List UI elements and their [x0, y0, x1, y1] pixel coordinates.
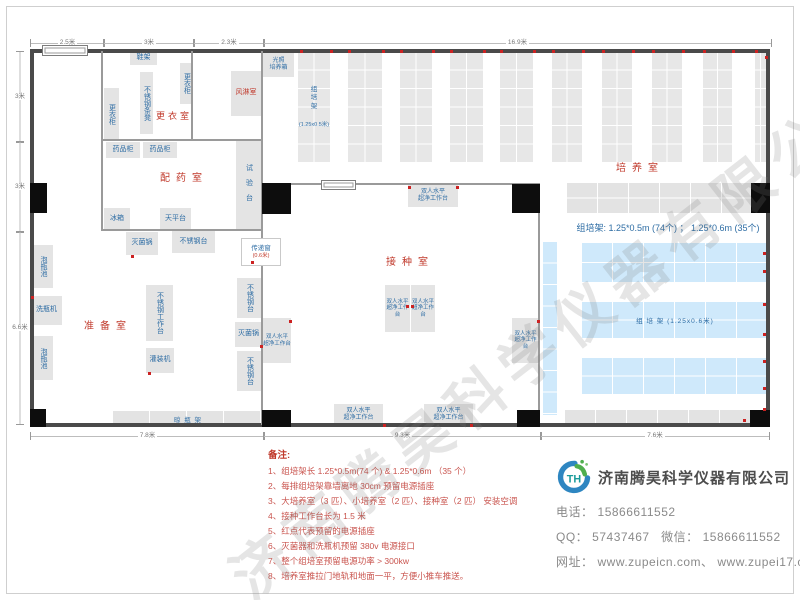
company-tel-line: 电话：15866611552 — [556, 503, 794, 520]
note-item: 1、组培架长 1.25*0.5m(74 个) & 1.25*0.6m （35 个… — [268, 464, 553, 479]
dimension-left: 3米 — [16, 141, 24, 233]
power-outlet-dot — [552, 50, 555, 53]
note-item: 4、接种工作台长为 1.5 米 — [268, 509, 553, 524]
company-logo-icon: TH — [556, 459, 592, 495]
dimension-bottom: 7.6米 — [540, 432, 770, 440]
power-outlet-dot — [652, 50, 655, 53]
rack-column-label: 组 培 架 — [300, 86, 328, 111]
wall-inoculation-right — [538, 185, 540, 425]
room-label-inoculation: 接种室 — [368, 258, 452, 268]
pass-window-label: 传递窗 — [251, 245, 271, 252]
culture-rack-column — [652, 52, 682, 163]
svg-text:TH: TH — [567, 473, 582, 485]
wall-right — [766, 49, 770, 427]
power-outlet-dot — [763, 408, 766, 411]
dimension-label: 16.9米 — [506, 40, 529, 47]
pass-through-window: 传递窗(0.6米) — [241, 238, 281, 266]
room-label-dispensing: 配药室 — [142, 174, 226, 184]
note-item: 6、灭菌器和洗瓶机预留 380v 电源接口 — [268, 539, 553, 554]
room-label-changing: 更衣室 — [144, 112, 204, 121]
bottle-drying-rack-label: 晾 瓶 架 — [174, 414, 202, 424]
clean-bench-center-left: 双人水平 超净工作台 — [385, 285, 410, 332]
pass-window-size: (0.6米) — [253, 253, 270, 259]
dimension-label: 3米 — [13, 94, 27, 101]
note-item: 8、培养室推拉门地轨和地面一平，方便小推车推送。 — [268, 569, 553, 584]
sterilizer-1: 灭菌锅 — [126, 232, 158, 255]
locker-left: 更衣柜 — [104, 88, 119, 141]
air-shower: 风淋室 — [231, 71, 261, 116]
power-outlet-dot — [382, 50, 385, 53]
soak-pool-2: 泡瓶池 — [33, 336, 53, 380]
culture-rack-column — [500, 52, 533, 163]
dimension-bottom: 7.8米 — [30, 432, 265, 440]
dimension-left: 3米 — [16, 51, 24, 143]
steel-table-1: 不锈钢台 — [172, 231, 215, 253]
sterilizer-2: 灭菌锅 — [235, 322, 262, 347]
power-outlet-dot — [732, 50, 735, 53]
power-outlet-dot — [763, 360, 766, 363]
note-item: 3、大培养室（3 匹）、小培养室（2 匹）、接种室（2 匹） 安装空调 — [268, 494, 553, 509]
power-outlet-dot — [300, 50, 303, 53]
door — [751, 183, 770, 213]
notes-title: 备注: — [268, 447, 553, 461]
door-opening — [321, 180, 356, 190]
steel-table-2: 不锈钢台 — [237, 278, 262, 318]
dimension-bottom: 9.3米 — [263, 432, 542, 440]
door — [30, 183, 47, 213]
culture-rack-column — [400, 52, 432, 163]
culture-rack-column — [450, 52, 483, 163]
web-value: www.zupeicn.com、 www.zupei17.com — [598, 555, 800, 569]
company-name: 济南腾昊科学仪器有限公司 — [598, 467, 790, 488]
dimension-label: 3米 — [13, 184, 27, 191]
clean-bench-west: 双人水平 超净工作台 — [263, 318, 291, 363]
power-outlet-dot — [251, 261, 254, 264]
power-outlet-dot — [682, 50, 685, 53]
dimension-top: 16.9米 — [263, 39, 772, 47]
dimension-top: 2.3米 — [193, 39, 265, 47]
power-outlet-dot — [289, 320, 292, 323]
power-outlet-dot — [450, 50, 453, 53]
door — [262, 410, 291, 427]
power-outlet-dot — [348, 50, 351, 53]
clean-bench-south-2: 双人水平 超净工作台 — [424, 404, 473, 425]
power-outlet-dot — [31, 296, 34, 299]
power-outlet-dot — [537, 320, 540, 323]
power-outlet-dot — [763, 252, 766, 255]
blue-rack-row-2-label: 组 培 架 (1.25x0.6米) — [636, 315, 714, 325]
door — [517, 410, 540, 427]
clean-bench-south-1: 双人水平 超净工作台 — [334, 404, 383, 425]
blue-rack-row-2: 组 培 架 (1.25x0.6米) — [582, 302, 768, 338]
dimension-label: 3米 — [142, 40, 156, 47]
wechat-label: 微信： — [661, 530, 699, 544]
dimension-label: 7.6米 — [645, 433, 665, 440]
blue-rack-row-3 — [582, 358, 768, 394]
medicine-cabinet-1: 药品柜 — [106, 142, 140, 158]
dimension-label: 7.8米 — [138, 433, 158, 440]
note-item: 2、每排组培架靠墙离地 30cm 预留电源插座 — [268, 479, 553, 494]
tel-value: 15866611552 — [598, 505, 676, 519]
power-outlet-dot — [743, 419, 746, 422]
power-outlet-dot — [765, 56, 768, 59]
blue-rack-vertical — [543, 242, 557, 415]
blue-rack-row-1 — [582, 243, 768, 282]
power-outlet-dot — [456, 186, 459, 189]
balance-table: 天平台 — [160, 208, 191, 230]
power-outlet-dot — [400, 50, 403, 53]
dimension-label: 2.3米 — [219, 40, 239, 47]
notes-block: 备注: 1、组培架长 1.25*0.5m(74 个) & 1.25*0.6m （… — [268, 447, 553, 584]
culture-rack-column — [703, 52, 732, 163]
company-web-line: 网址：www.zupeicn.com、 www.zupei17.com — [556, 553, 794, 570]
wall-bottom — [30, 423, 770, 427]
power-outlet-dot — [260, 345, 263, 348]
notes-list: 1、组培架长 1.25*0.5m(74 个) & 1.25*0.6m （35 个… — [268, 464, 553, 584]
door — [750, 410, 770, 427]
rack-column-sub-label: (1.25x0.5米) — [293, 122, 335, 129]
power-outlet-dot — [755, 50, 758, 53]
door-opening — [42, 45, 88, 56]
culture-rack-column — [602, 52, 632, 163]
tel-label: 电话： — [556, 505, 594, 519]
power-outlet-dot — [763, 333, 766, 336]
power-outlet-dot — [763, 270, 766, 273]
power-outlet-dot — [406, 305, 409, 308]
wall-left — [30, 49, 34, 427]
power-outlet-dot — [632, 50, 635, 53]
dimension-top: 3米 — [103, 39, 195, 47]
clean-bench-top: 双人水平 超净工作台 — [408, 185, 458, 207]
power-outlet-dot — [330, 50, 333, 53]
power-outlet-dot — [533, 50, 536, 53]
soak-pool-1: 泡瓶池 — [33, 245, 53, 288]
power-outlet-dot — [383, 424, 386, 427]
medicine-cabinet-2: 药品柜 — [143, 142, 177, 158]
room-label-culture: 培养室 — [598, 164, 682, 174]
power-outlet-dot — [602, 50, 605, 53]
light-incubator: 光照 培养箱 — [263, 52, 294, 77]
door — [30, 409, 46, 427]
bottle-washer: 洗瓶机 — [31, 296, 62, 325]
dimension-label: 9.3米 — [393, 433, 413, 440]
door — [262, 183, 291, 214]
power-outlet-dot — [411, 305, 414, 308]
company-block: TH 济南腾昊科学仪器有限公司 电话：15866611552 QQ：574374… — [556, 459, 794, 570]
web-label: 网址： — [556, 555, 594, 569]
power-outlet-dot — [763, 303, 766, 306]
fridge: 冰箱 — [104, 208, 130, 230]
wall-inner-changing-left — [101, 51, 103, 231]
power-outlet-dot — [500, 50, 503, 53]
wechat-value: 15866611552 — [703, 530, 781, 544]
qq-value: 57437467 — [592, 530, 649, 544]
shoe-rack: 鞋架 — [130, 52, 157, 65]
power-outlet-dot — [131, 255, 134, 258]
culture-rack-column — [552, 52, 582, 163]
company-header: TH 济南腾昊科学仪器有限公司 — [556, 459, 794, 495]
filling-machine: 灌装机 — [146, 348, 174, 373]
room-label-preparation: 准备室 — [66, 322, 150, 332]
floor-plan-page: 鞋架更衣柜不锈钢条凳更衣柜风淋室光照 培养箱药品柜药品柜试验台冰箱天平台灭菌锅不… — [0, 0, 800, 600]
steel-worktable: 不锈钢工作台 — [146, 285, 173, 341]
power-outlet-dot — [148, 372, 151, 375]
power-outlet-dot — [763, 387, 766, 390]
dimension-left: 6.6米 — [16, 231, 24, 425]
rack-spec-note: 组培架: 1.25*0.5m (74个) ； 1.25*0.6m (35个) — [566, 223, 770, 235]
wall-inner-airshower — [191, 51, 193, 141]
company-qq-line: QQ：57437467 微信：15866611552 — [556, 528, 794, 545]
power-outlet-dot — [483, 50, 486, 53]
wall-inner-changing-bottom — [101, 139, 263, 141]
steel-table-3: 不锈钢台 — [237, 351, 262, 391]
power-outlet-dot — [703, 50, 706, 53]
culture-rack-column — [348, 52, 382, 163]
door — [512, 184, 540, 213]
power-outlet-dot — [432, 50, 435, 53]
clean-bench-east: 双人水平 超净工作台 — [512, 318, 539, 363]
steel-bench: 不锈钢条凳 — [140, 72, 153, 134]
note-item: 5、红点代表预留的电源插座 — [268, 524, 553, 539]
clean-bench-center-right: 双人水平 超净工作台 — [411, 285, 435, 332]
culture-rack-column — [755, 52, 766, 163]
wall-inner-dispensing-bottom — [101, 229, 263, 231]
power-outlet-dot — [408, 186, 411, 189]
power-outlet-dot — [582, 50, 585, 53]
qq-label: QQ： — [556, 530, 588, 544]
note-item: 7、整个组培室预留电源功率 > 300kw — [268, 554, 553, 569]
dimension-label: 6.6米 — [10, 325, 30, 332]
test-bench: 试验台 — [236, 141, 261, 231]
power-outlet-dot — [470, 424, 473, 427]
wall-inoculation-top — [263, 183, 540, 185]
culture-rack-row-top — [567, 183, 752, 213]
